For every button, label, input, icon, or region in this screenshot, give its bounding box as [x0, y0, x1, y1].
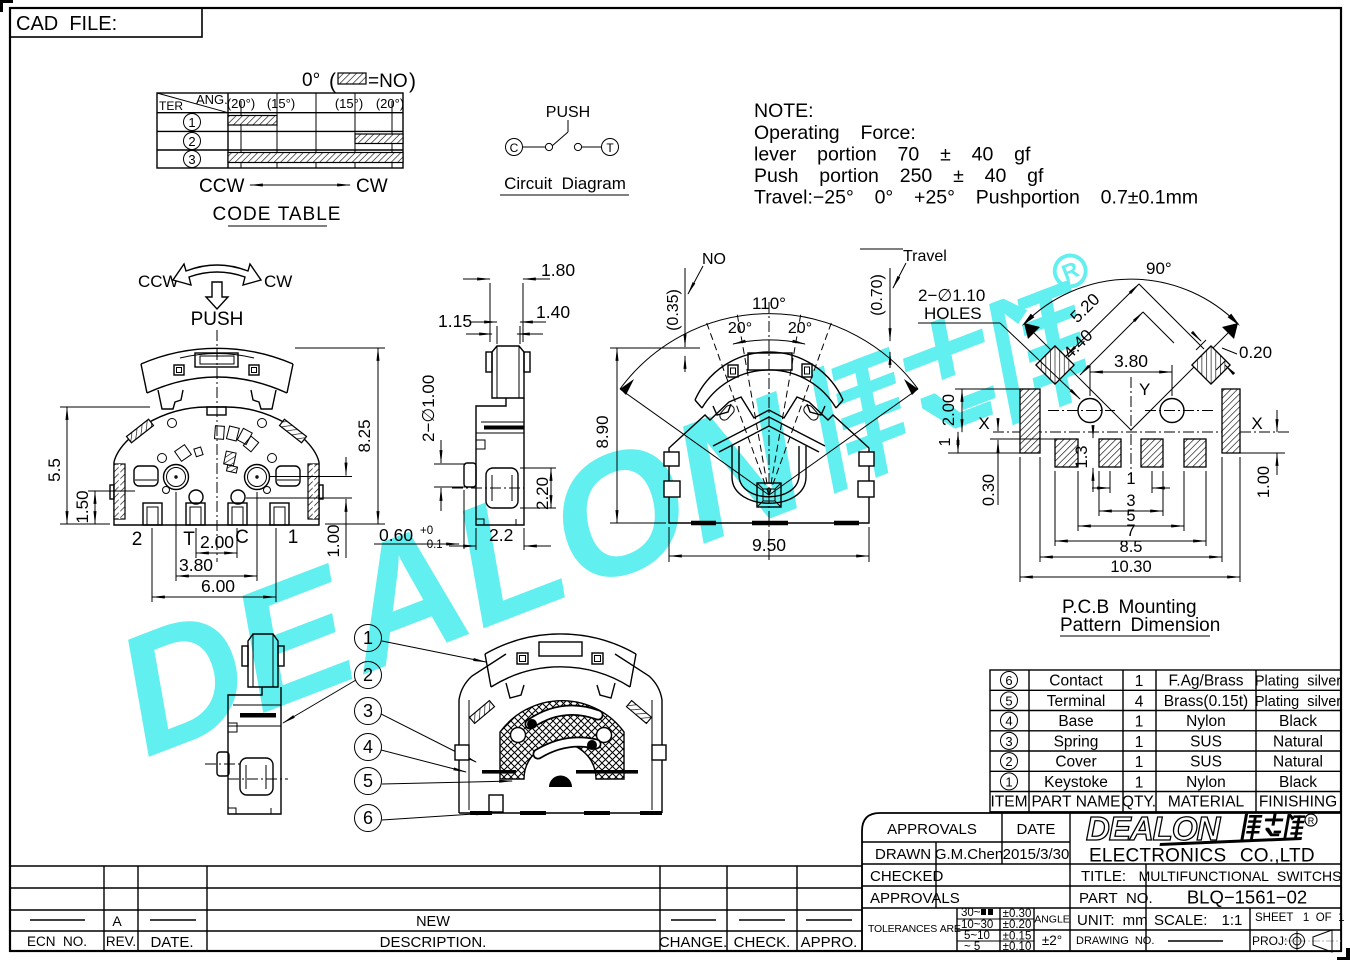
svg-text:9.50: 9.50 — [752, 535, 786, 555]
svg-text:Circuit Diagram: Circuit Diagram — [504, 174, 626, 193]
svg-text:90°: 90° — [1146, 259, 1172, 278]
svg-text:2: 2 — [1005, 754, 1012, 769]
svg-text:Black: Black — [1279, 774, 1317, 791]
svg-text:8.25: 8.25 — [355, 419, 374, 452]
svg-text:BLQ−1561−02: BLQ−1561−02 — [1187, 887, 1307, 908]
svg-text:(0.70): (0.70) — [869, 274, 886, 316]
svg-text:3: 3 — [188, 152, 195, 167]
svg-text:Plating silver: Plating silver — [1255, 674, 1341, 690]
svg-text:APPROVALS: APPROVALS — [870, 890, 960, 907]
svg-text:1.15: 1.15 — [438, 311, 472, 331]
svg-text:(15°): (15°) — [335, 96, 363, 111]
svg-text:NO: NO — [702, 251, 726, 268]
svg-text:0.20: 0.20 — [1239, 343, 1272, 362]
svg-text:2: 2 — [188, 134, 195, 149]
svg-text:DATE: DATE — [1017, 821, 1056, 838]
svg-text:(0.35): (0.35) — [665, 289, 682, 331]
svg-text:20°: 20° — [788, 320, 812, 337]
svg-text:DESCRIPTION.: DESCRIPTION. — [380, 934, 487, 951]
svg-text:4: 4 — [1135, 693, 1144, 710]
svg-text:HOLES: HOLES — [924, 304, 982, 323]
svg-text:DRAWN: DRAWN — [875, 846, 931, 863]
svg-text:2−∅1.10: 2−∅1.10 — [918, 286, 985, 305]
svg-text:T: T — [183, 529, 195, 550]
svg-text:(: ( — [329, 70, 336, 93]
svg-text:1.50: 1.50 — [73, 490, 92, 523]
svg-text:Cover: Cover — [1055, 754, 1096, 771]
svg-text:5.5: 5.5 — [45, 458, 64, 482]
svg-text:): ) — [409, 70, 416, 93]
svg-text:FINISHING: FINISHING — [1259, 794, 1337, 811]
svg-text:2.2: 2.2 — [489, 525, 513, 545]
svg-text:TITLE:: TITLE: — [1081, 868, 1126, 885]
svg-text:1: 1 — [1135, 734, 1144, 751]
svg-text:SCALE: 1:1: SCALE: 1:1 — [1154, 912, 1242, 929]
svg-text:Black: Black — [1279, 713, 1317, 730]
svg-text:Push portion 250 ± 40 gf: Push portion 250 ± 40 gf — [754, 165, 1044, 187]
svg-text:1.40: 1.40 — [536, 302, 570, 322]
svg-text:1: 1 — [288, 527, 299, 548]
svg-text:8.90: 8.90 — [593, 415, 612, 448]
svg-text:1: 1 — [1005, 774, 1012, 789]
svg-text:TOLERANCES ARE: TOLERANCES ARE — [868, 923, 961, 935]
svg-text:0.60: 0.60 — [379, 525, 413, 545]
svg-text:−0.1: −0.1 — [420, 539, 443, 551]
svg-text:CCW: CCW — [199, 176, 244, 197]
svg-text:F.Ag/Brass: F.Ag/Brass — [1169, 673, 1244, 690]
svg-text:Spring: Spring — [1054, 733, 1099, 750]
svg-text:=NO: =NO — [368, 71, 408, 92]
svg-text:ANGLE: ANGLE — [1034, 914, 1070, 926]
svg-text:ANG.: ANG. — [196, 92, 228, 107]
svg-text:1.3: 1.3 — [1073, 446, 1091, 469]
svg-text:1: 1 — [188, 115, 195, 130]
svg-text:1: 1 — [1135, 714, 1144, 731]
svg-text:10.30: 10.30 — [1110, 558, 1151, 576]
svg-text:Brass(0.15t): Brass(0.15t) — [1164, 693, 1248, 710]
svg-text:PART NO.: PART NO. — [1079, 890, 1153, 907]
svg-text:(15°): (15°) — [267, 96, 295, 111]
svg-text:CHECK.: CHECK. — [734, 934, 791, 951]
svg-text:3: 3 — [363, 701, 373, 721]
svg-text:APPRO.: APPRO. — [801, 934, 858, 951]
svg-text:Pattern Dimension: Pattern Dimension — [1060, 615, 1220, 636]
svg-text:X: X — [1251, 414, 1262, 433]
svg-text:4: 4 — [1005, 714, 1012, 729]
svg-text:Contact: Contact — [1049, 673, 1103, 690]
svg-text:UNIT: mm: UNIT: mm — [1077, 912, 1148, 929]
svg-text:6: 6 — [363, 808, 373, 828]
svg-text:Nylon: Nylon — [1186, 774, 1226, 791]
svg-text:ITEM: ITEM — [990, 794, 1027, 811]
svg-text:2015/3/30: 2015/3/30 — [1003, 846, 1070, 863]
svg-text:3.80: 3.80 — [179, 555, 213, 575]
svg-text:CHECKED: CHECKED — [870, 868, 944, 885]
svg-text:0°: 0° — [302, 70, 320, 91]
svg-text:R: R — [1308, 816, 1315, 826]
svg-text:G.M.Chen: G.M.Chen — [935, 846, 1003, 863]
svg-text:NOTE:: NOTE: — [754, 100, 814, 122]
svg-text:A: A — [112, 913, 122, 929]
svg-text:±2°: ±2° — [1042, 933, 1062, 948]
svg-text:2: 2 — [363, 665, 373, 685]
svg-text:1: 1 — [1126, 470, 1135, 488]
svg-text:Natural: Natural — [1273, 733, 1323, 750]
svg-text:2.00: 2.00 — [940, 394, 958, 426]
svg-text:0.30: 0.30 — [980, 474, 998, 506]
svg-text:2−∅1.00: 2−∅1.00 — [419, 375, 438, 442]
svg-text:30~: 30~ — [961, 907, 981, 919]
svg-text:T: T — [606, 141, 614, 155]
svg-text:1: 1 — [1135, 754, 1144, 771]
svg-text:CODE TABLE: CODE TABLE — [213, 204, 342, 225]
svg-text:3: 3 — [1005, 734, 1012, 749]
svg-text:CHANGE.: CHANGE. — [659, 934, 727, 951]
svg-text:DATE.: DATE. — [150, 934, 193, 951]
svg-text:110°: 110° — [752, 294, 786, 313]
svg-text:REV.: REV. — [106, 934, 136, 949]
svg-text:(20°): (20°) — [376, 96, 404, 111]
svg-text:(20°): (20°) — [227, 96, 255, 111]
svg-text:±0.20: ±0.20 — [1003, 919, 1032, 931]
svg-text:SHEET 1 OF 1: SHEET 1 OF 1 — [1255, 912, 1344, 924]
svg-text:ELECTRONICS CO.,LTD: ELECTRONICS CO.,LTD — [1089, 846, 1315, 867]
svg-text:QTY.: QTY. — [1122, 794, 1156, 811]
svg-text:2.00: 2.00 — [200, 532, 234, 552]
svg-text:1: 1 — [1135, 673, 1144, 690]
svg-text:Travel: Travel — [903, 248, 947, 265]
svg-text:PUSH: PUSH — [546, 104, 590, 121]
svg-text:lever portion 70 ± 40 gf: lever portion 70 ± 40 gf — [754, 144, 1031, 166]
svg-text:DRAWING NO.: DRAWING NO. — [1076, 935, 1154, 947]
svg-text:1: 1 — [363, 628, 373, 648]
svg-text:APPROVALS: APPROVALS — [887, 821, 977, 838]
svg-text:±0.10: ±0.10 — [1003, 941, 1032, 953]
svg-text:C: C — [510, 141, 519, 155]
svg-text:1.80: 1.80 — [541, 260, 575, 280]
svg-text:Terminal: Terminal — [1047, 693, 1106, 710]
svg-text:MATERIAL: MATERIAL — [1168, 794, 1245, 811]
svg-text:PART NAME: PART NAME — [1032, 794, 1121, 811]
svg-text:Plating silver: Plating silver — [1255, 694, 1341, 710]
svg-text:CAD FILE:: CAD FILE: — [16, 13, 117, 35]
svg-text:20°: 20° — [728, 320, 752, 337]
svg-text:Y: Y — [1139, 380, 1150, 399]
svg-text:5: 5 — [1005, 693, 1012, 708]
svg-text:Operating Force:: Operating Force: — [754, 122, 916, 144]
svg-text:CCW: CCW — [138, 272, 179, 291]
svg-text:5: 5 — [363, 771, 373, 791]
svg-text:6: 6 — [1005, 673, 1012, 688]
svg-text:ECN NO.: ECN NO. — [27, 934, 87, 949]
svg-text:MULTIFUNCTIONAL SWITCHS: MULTIFUNCTIONAL SWITCHS — [1139, 868, 1342, 884]
svg-text:6.00: 6.00 — [201, 576, 235, 596]
svg-text:TER: TER — [159, 99, 183, 113]
svg-text:X: X — [978, 414, 989, 433]
svg-text:2: 2 — [132, 529, 143, 550]
svg-text:Keystoke: Keystoke — [1044, 774, 1108, 791]
svg-text:Nylon: Nylon — [1186, 713, 1226, 730]
svg-text:PUSH: PUSH — [191, 309, 244, 330]
svg-text:1: 1 — [937, 437, 954, 446]
svg-text:4: 4 — [363, 737, 373, 757]
svg-text:1.00: 1.00 — [324, 524, 343, 557]
svg-text:Travel:−25° 0° +25° Pushpor: Travel:−25° 0° +25° Pushportion 0.7±0.1m… — [754, 187, 1198, 209]
svg-text:Base: Base — [1058, 713, 1093, 730]
svg-text:8.5: 8.5 — [1120, 538, 1143, 556]
svg-text:CW: CW — [356, 176, 388, 197]
svg-text:PROJ:: PROJ: — [1252, 934, 1287, 948]
svg-text:SUS: SUS — [1190, 754, 1222, 771]
svg-text:3.80: 3.80 — [1114, 351, 1148, 371]
svg-text:~ 5: ~ 5 — [964, 941, 980, 953]
svg-text:CW: CW — [264, 272, 292, 291]
svg-text:NEW: NEW — [416, 914, 450, 930]
svg-text:1: 1 — [1135, 774, 1144, 791]
svg-text:1.00: 1.00 — [1255, 466, 1273, 498]
svg-text:2.20: 2.20 — [533, 477, 552, 510]
svg-text:SUS: SUS — [1190, 733, 1222, 750]
svg-text:Natural: Natural — [1273, 754, 1323, 771]
svg-text:+0: +0 — [420, 525, 433, 537]
